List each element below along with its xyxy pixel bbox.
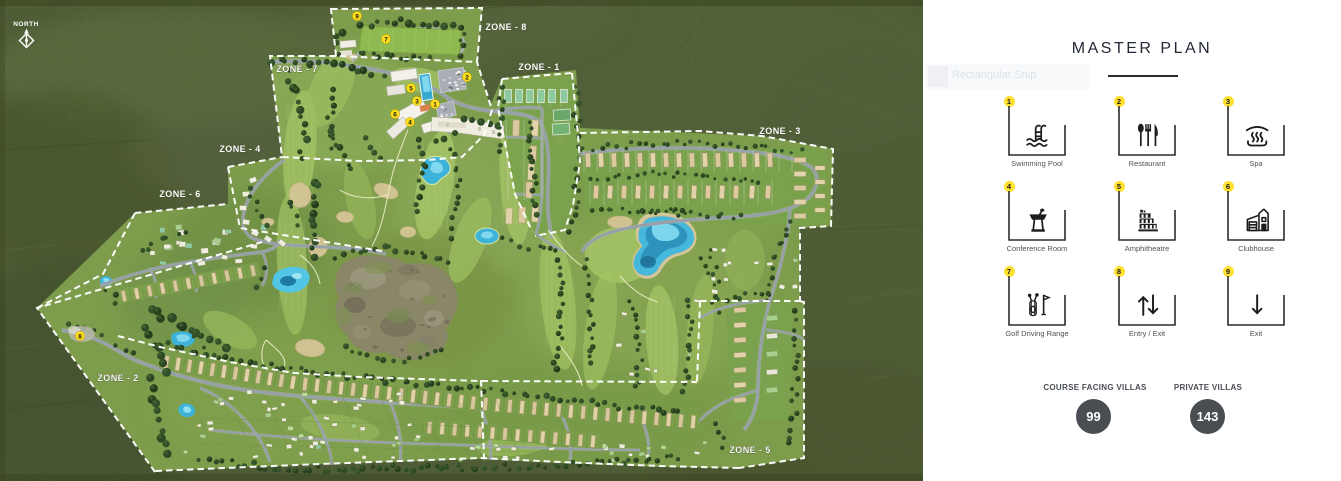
svg-text:7: 7 [384,36,388,43]
svg-text:4: 4 [408,119,412,126]
svg-text:2: 2 [465,74,469,81]
svg-text:ZONE - 7: ZONE - 7 [276,64,317,74]
svg-text:ZONE - 1: ZONE - 1 [518,62,559,72]
svg-text:3: 3 [415,98,419,105]
svg-text:ZONE - 6: ZONE - 6 [159,189,200,199]
svg-text:ZONE - 8: ZONE - 8 [485,22,526,32]
svg-text:ZONE - 3: ZONE - 3 [759,126,800,136]
svg-text:ZONE - 2: ZONE - 2 [97,373,138,383]
svg-text:5: 5 [409,85,413,92]
svg-text:8: 8 [78,333,82,340]
svg-text:ZONE - 5: ZONE - 5 [729,445,770,455]
svg-text:9: 9 [355,13,359,20]
svg-text:NORTH: NORTH [13,21,39,28]
svg-text:1: 1 [433,101,437,108]
svg-text:6: 6 [393,111,397,118]
svg-text:ZONE - 4: ZONE - 4 [219,144,260,154]
